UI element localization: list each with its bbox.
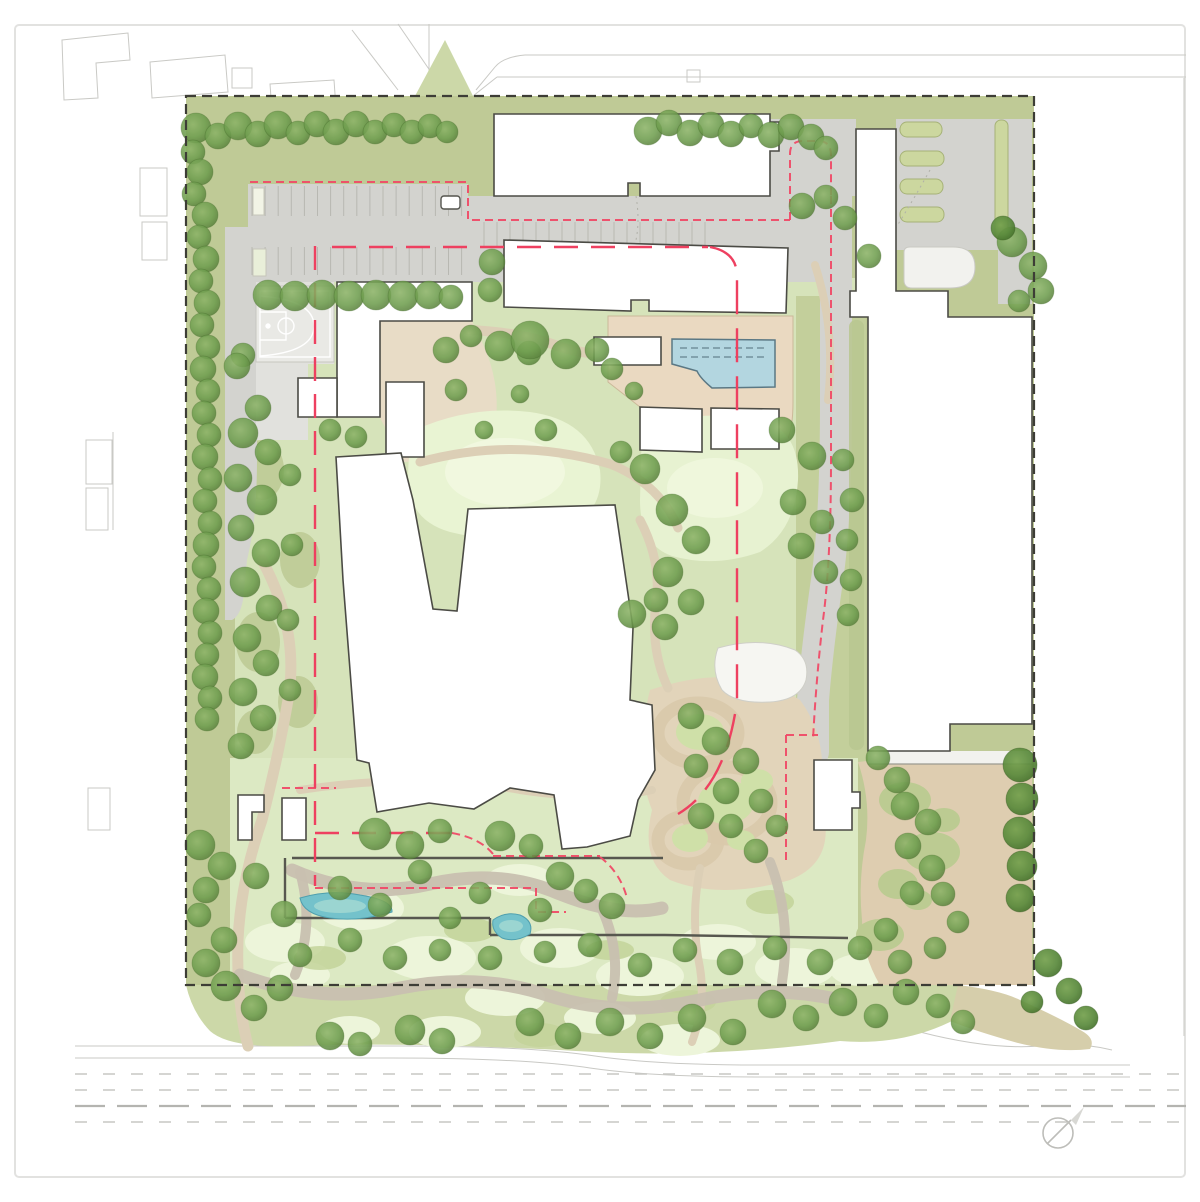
tree-canopy [673, 938, 697, 962]
context-line [232, 68, 252, 88]
site-plan-page [0, 0, 1200, 1202]
tree-canopy [511, 321, 549, 359]
tree-canopy [187, 159, 213, 185]
tree-canopy [192, 202, 218, 228]
north-arrow [1043, 1107, 1084, 1148]
tree-canopy [652, 614, 678, 640]
tree-canopy [396, 831, 424, 859]
north-arrow-icon [1071, 1107, 1084, 1125]
tree-canopy [252, 539, 280, 567]
tree-canopy [840, 569, 862, 591]
evergreen-canopy [1034, 949, 1062, 977]
tree-canopy [511, 385, 529, 403]
tree-canopy [656, 494, 688, 526]
tree-canopy [228, 733, 254, 759]
tree-canopy [758, 990, 786, 1018]
tree-canopy [445, 379, 467, 401]
tree-canopy [915, 809, 941, 835]
tree-canopy [193, 532, 219, 558]
planting-finger [900, 151, 944, 166]
tree-canopy [439, 907, 461, 929]
tree-canopy [832, 449, 854, 471]
tree-canopy [1028, 278, 1054, 304]
tree-canopy [884, 767, 910, 793]
tree-canopy [926, 994, 950, 1018]
tree-canopy [224, 464, 252, 492]
tree-canopy [428, 819, 452, 843]
tree-canopy [250, 705, 276, 731]
tree-canopy [361, 280, 391, 310]
tree-canopy [866, 746, 890, 770]
tree-canopy [951, 1010, 975, 1034]
tree-canopy [891, 792, 919, 820]
tree-canopy [717, 949, 743, 975]
tree-canopy [788, 533, 814, 559]
site-lawn [415, 40, 473, 96]
tree-canopy [678, 703, 704, 729]
tree-canopy [241, 995, 267, 1021]
tree-canopy [596, 1008, 624, 1036]
tree-canopy [625, 382, 643, 400]
tree-canopy [359, 818, 391, 850]
tree-canopy [338, 928, 362, 952]
tree-canopy [253, 650, 279, 676]
tree-canopy [895, 833, 921, 859]
tree-canopy [585, 338, 609, 362]
tree-canopy [900, 881, 924, 905]
tree-canopy [247, 485, 277, 515]
sand-play-area [715, 642, 807, 702]
tree-canopy [516, 1008, 544, 1036]
tree-canopy [469, 882, 491, 904]
tree-canopy [763, 936, 787, 960]
tree-canopy [192, 401, 216, 425]
tree-canopy [279, 679, 301, 701]
parking-detail [253, 188, 264, 215]
context-line [352, 30, 398, 90]
tree-canopy [688, 803, 714, 829]
tree-canopy [810, 510, 834, 534]
tree-canopy [193, 246, 219, 272]
tree-canopy [555, 1023, 581, 1049]
dropoff-island [904, 247, 975, 288]
tree-canopy [388, 281, 418, 311]
tree-canopy [460, 325, 482, 347]
tree-canopy [280, 281, 310, 311]
tree-canopy [319, 419, 341, 441]
tree-canopy [328, 876, 352, 900]
tree-canopy [478, 278, 502, 302]
tree-canopy [267, 975, 293, 1001]
tree-canopy [888, 950, 912, 974]
evergreen-canopy [1056, 978, 1082, 1004]
tree-canopy [198, 621, 222, 645]
court-marking [266, 324, 270, 328]
tree-canopy [848, 936, 872, 960]
tree-canopy [682, 526, 710, 554]
tree-canopy [187, 903, 211, 927]
tree-canopy [189, 269, 213, 293]
tree-canopy [814, 185, 838, 209]
tree-canopy [228, 515, 254, 541]
building-footprint [336, 453, 655, 849]
tree-canopy [528, 898, 552, 922]
tree-canopy [857, 244, 881, 268]
tree-canopy [744, 839, 768, 863]
tree-canopy [574, 879, 598, 903]
tree-canopy [702, 727, 730, 755]
tree-canopy [947, 911, 969, 933]
tree-canopy [196, 379, 220, 403]
tree-canopy [190, 313, 214, 337]
tree-canopy [255, 439, 281, 465]
tree-canopy [769, 417, 795, 443]
tree-canopy [224, 353, 250, 379]
context-line [687, 70, 700, 82]
north-arrow-icon [1047, 1120, 1071, 1144]
tree-canopy [192, 949, 220, 977]
pond [499, 920, 523, 932]
context-line [142, 222, 167, 260]
planting-finger [900, 207, 944, 222]
tree-canopy [271, 901, 297, 927]
planting-finger [900, 122, 942, 137]
tree-canopy [798, 442, 826, 470]
tree-canopy [720, 1019, 746, 1045]
tree-canopy [749, 789, 773, 813]
tree-canopy [644, 588, 668, 612]
tree-canopy [833, 206, 857, 230]
tree-canopy [551, 339, 581, 369]
tree-canopy [439, 285, 463, 309]
tree-canopy [601, 358, 623, 380]
pond [314, 899, 366, 913]
tree-canopy [874, 918, 898, 942]
tree-canopy [485, 331, 515, 361]
tree-canopy [233, 624, 261, 652]
tree-canopy [193, 877, 219, 903]
tree-canopy [789, 193, 815, 219]
tree-canopy [192, 555, 216, 579]
tree-canopy [766, 815, 788, 837]
tree-canopy [837, 604, 859, 626]
building-footprint [282, 798, 306, 840]
ne-dropoff [904, 247, 975, 288]
tree-canopy [196, 335, 220, 359]
building-footprint [640, 407, 702, 452]
tree-canopy [253, 280, 283, 310]
tree-canopy [198, 467, 222, 491]
evergreen-canopy [1006, 884, 1034, 912]
planting-finger [900, 179, 943, 194]
tree-canopy [345, 426, 367, 448]
tree-canopy [429, 939, 451, 961]
evergreen-canopy [991, 216, 1015, 240]
tree-canopy [277, 609, 299, 631]
road-dashes-light [75, 1074, 1186, 1122]
tree-canopy [192, 444, 218, 470]
tree-canopy [924, 937, 946, 959]
context-line [86, 440, 112, 484]
tree-canopy [197, 423, 221, 447]
tree-canopy [229, 678, 257, 706]
tree-canopy [245, 395, 271, 421]
tree-canopy [836, 529, 858, 551]
tree-canopy [814, 136, 838, 160]
context-line [150, 55, 228, 98]
tree-canopy [678, 1004, 706, 1032]
tree-canopy [578, 933, 602, 957]
tree-canopy [653, 557, 683, 587]
tree-canopy [187, 225, 211, 249]
tree-canopy [334, 281, 364, 311]
context-line [140, 168, 167, 216]
tree-canopy [637, 1023, 663, 1049]
tree-canopy [194, 290, 220, 316]
tree-canopy [840, 488, 864, 512]
tree-canopy [534, 941, 556, 963]
building-footprint [298, 378, 337, 417]
tree-canopy [198, 686, 222, 710]
tree-canopy [281, 534, 303, 556]
tree-canopy [368, 893, 392, 917]
tree-canopy [433, 337, 459, 363]
tree-canopy [864, 1004, 888, 1028]
tree-canopy [193, 598, 219, 624]
tree-canopy [535, 419, 557, 441]
tree-canopy [807, 949, 833, 975]
tree-canopy [599, 893, 625, 919]
tree-canopy [478, 946, 502, 970]
tree-canopy [519, 834, 543, 858]
tree-canopy [190, 356, 216, 382]
parking-detail [253, 249, 266, 276]
tree-canopy [678, 589, 704, 615]
evergreen-canopy [1007, 851, 1037, 881]
tree-canopy [279, 464, 301, 486]
tree-canopy [893, 979, 919, 1005]
site-plan-drawing [0, 0, 1200, 1202]
tree-canopy [630, 454, 660, 484]
tree-canopy [193, 489, 217, 513]
tree-canopy [395, 1015, 425, 1045]
tree-canopy [546, 862, 574, 890]
tree-canopy [931, 882, 955, 906]
tree-canopy [195, 707, 219, 731]
context-line [86, 488, 108, 530]
tree-canopy [211, 927, 237, 953]
parking-detail [441, 196, 460, 209]
tree-canopy [713, 778, 739, 804]
tree-canopy [383, 946, 407, 970]
tree-canopy [485, 821, 515, 851]
tree-canopy [628, 953, 652, 977]
evergreen-canopy [1074, 1006, 1098, 1030]
tree-canopy [814, 560, 838, 584]
tree-canopy [780, 489, 806, 515]
evergreen-canopy [1003, 817, 1035, 849]
tree-canopy [610, 441, 632, 463]
tree-canopy [195, 643, 219, 667]
tree-canopy [348, 1032, 372, 1056]
tree-canopy [228, 418, 258, 448]
tree-canopy [230, 567, 260, 597]
tree-canopy [479, 249, 505, 275]
evergreen-canopy [1021, 991, 1043, 1013]
tree-canopy [618, 600, 646, 628]
context-line [88, 788, 110, 830]
tree-canopy [793, 1005, 819, 1031]
tree-canopy [436, 121, 458, 143]
tree-canopy [198, 511, 222, 535]
context-line [476, 55, 525, 90]
tree-canopy [192, 664, 218, 690]
evergreen-canopy [1003, 748, 1037, 782]
tree-canopy [429, 1028, 455, 1054]
tree-canopy [316, 1022, 344, 1050]
sandbox [715, 642, 807, 702]
tree-canopy [307, 280, 337, 310]
tree-canopy [719, 814, 743, 838]
tree-canopy [288, 943, 312, 967]
tree-canopy [829, 988, 857, 1016]
tree-canopy [684, 754, 708, 778]
tree-canopy [919, 855, 945, 881]
tree-canopy [197, 577, 221, 601]
tree-canopy [408, 860, 432, 884]
tree-canopy [733, 748, 759, 774]
tree-canopy [243, 863, 269, 889]
context-line [62, 33, 130, 100]
building-footprint [386, 382, 424, 457]
tree-canopy [1008, 290, 1030, 312]
tree-canopy [208, 852, 236, 880]
tree-canopy [185, 830, 215, 860]
tree-canopy [475, 421, 493, 439]
